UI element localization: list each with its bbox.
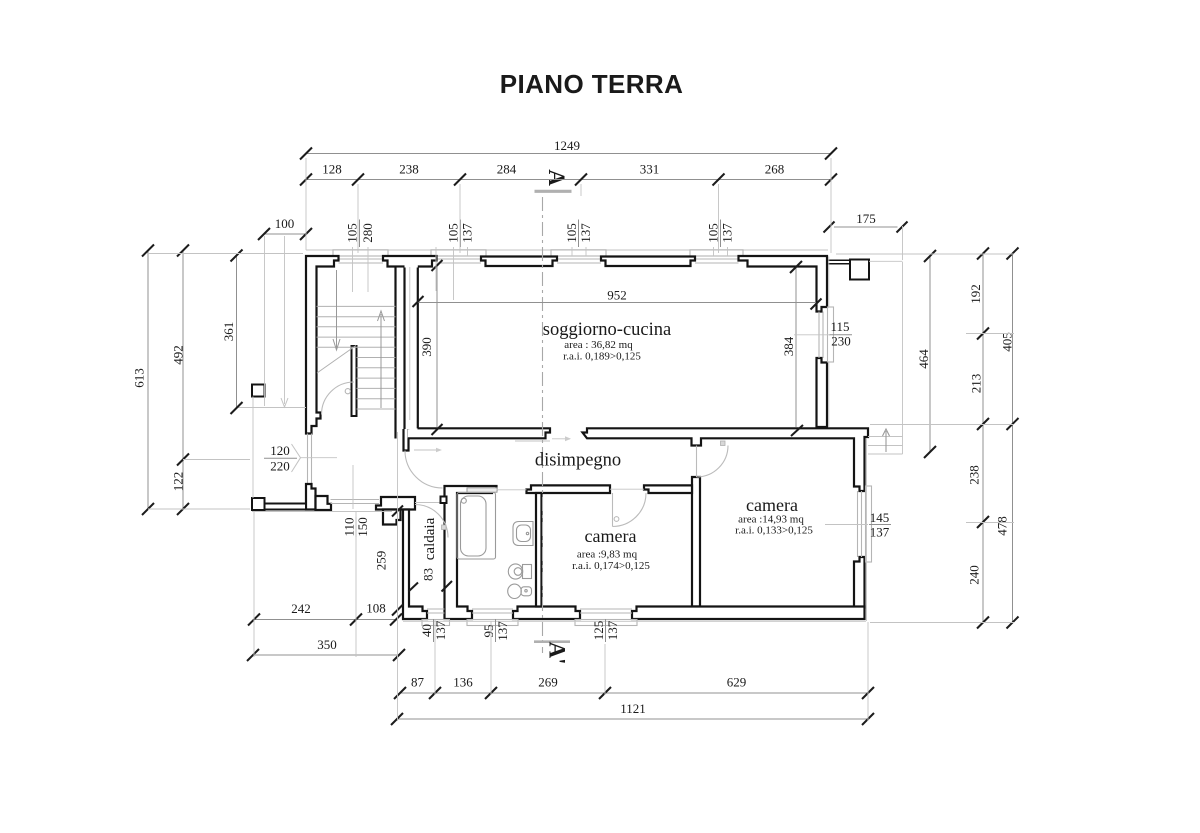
svg-text:136: 136 bbox=[453, 675, 473, 690]
svg-text:240: 240 bbox=[967, 565, 982, 585]
svg-text:area :9,83 mq: area :9,83 mq bbox=[577, 549, 638, 561]
svg-text:269: 269 bbox=[538, 675, 558, 690]
svg-text:492: 492 bbox=[171, 345, 186, 365]
svg-text:175: 175 bbox=[856, 211, 876, 226]
svg-text:137: 137 bbox=[578, 223, 593, 243]
svg-text:137: 137 bbox=[605, 620, 620, 640]
svg-text:soggiorno-cucina: soggiorno-cucina bbox=[543, 320, 671, 340]
svg-text:213: 213 bbox=[969, 374, 984, 394]
svg-text:268: 268 bbox=[765, 162, 785, 177]
svg-text:105: 105 bbox=[446, 223, 461, 243]
svg-text:105: 105 bbox=[564, 223, 579, 243]
svg-text:390: 390 bbox=[419, 337, 434, 357]
svg-text:area : 36,82 mq: area : 36,82 mq bbox=[564, 339, 633, 351]
svg-text:284: 284 bbox=[497, 162, 517, 177]
svg-text:PIANO TERRA: PIANO TERRA bbox=[500, 69, 684, 99]
svg-text:r.a.i. 0,174>0,125: r.a.i. 0,174>0,125 bbox=[572, 560, 650, 572]
svg-text:242: 242 bbox=[291, 601, 311, 616]
svg-text:952: 952 bbox=[607, 288, 627, 303]
svg-text:r.a.i. 0,133>0,125: r.a.i. 0,133>0,125 bbox=[735, 525, 813, 537]
svg-text:259: 259 bbox=[374, 551, 389, 571]
svg-text:361: 361 bbox=[221, 322, 236, 342]
svg-text:105: 105 bbox=[345, 223, 360, 243]
svg-text:613: 613 bbox=[132, 368, 147, 388]
svg-text:120: 120 bbox=[270, 443, 290, 458]
svg-text:100: 100 bbox=[275, 216, 295, 231]
svg-text:150: 150 bbox=[355, 517, 370, 537]
svg-text:115: 115 bbox=[830, 319, 849, 334]
svg-text:137: 137 bbox=[460, 223, 475, 243]
svg-text:192: 192 bbox=[968, 284, 983, 304]
svg-text:87: 87 bbox=[411, 675, 425, 690]
svg-text:145: 145 bbox=[870, 510, 890, 525]
svg-text:137: 137 bbox=[720, 223, 735, 243]
svg-text:A: A bbox=[544, 169, 569, 186]
svg-text:280: 280 bbox=[360, 223, 375, 243]
svg-text:108: 108 bbox=[366, 601, 386, 616]
svg-text:1249: 1249 bbox=[554, 138, 580, 153]
svg-text:125: 125 bbox=[591, 621, 606, 641]
svg-text:122: 122 bbox=[171, 472, 186, 492]
svg-text:331: 331 bbox=[640, 162, 660, 177]
svg-text:137: 137 bbox=[495, 621, 510, 641]
svg-text:238: 238 bbox=[967, 465, 982, 485]
svg-text:629: 629 bbox=[727, 675, 747, 690]
svg-text:camera: camera bbox=[585, 526, 637, 546]
svg-text:A': A' bbox=[545, 642, 570, 665]
svg-text:40: 40 bbox=[419, 624, 434, 637]
svg-text:95: 95 bbox=[481, 625, 496, 638]
svg-text:220: 220 bbox=[270, 459, 290, 474]
svg-text:disimpegno: disimpegno bbox=[535, 451, 621, 471]
svg-text:230: 230 bbox=[831, 334, 851, 349]
svg-text:camera: camera bbox=[746, 495, 798, 515]
svg-text:384: 384 bbox=[781, 336, 796, 356]
svg-text:r.a.i. 0,189>0,125: r.a.i. 0,189>0,125 bbox=[563, 351, 641, 363]
svg-text:478: 478 bbox=[995, 516, 1010, 536]
svg-text:caldaia: caldaia bbox=[422, 517, 438, 560]
svg-text:83: 83 bbox=[421, 568, 436, 581]
svg-text:350: 350 bbox=[317, 637, 337, 652]
svg-text:405: 405 bbox=[1000, 332, 1015, 352]
svg-text:464: 464 bbox=[916, 349, 931, 369]
svg-text:137: 137 bbox=[870, 525, 890, 540]
svg-text:238: 238 bbox=[399, 162, 419, 177]
svg-text:128: 128 bbox=[322, 162, 342, 177]
svg-text:1121: 1121 bbox=[620, 701, 646, 716]
